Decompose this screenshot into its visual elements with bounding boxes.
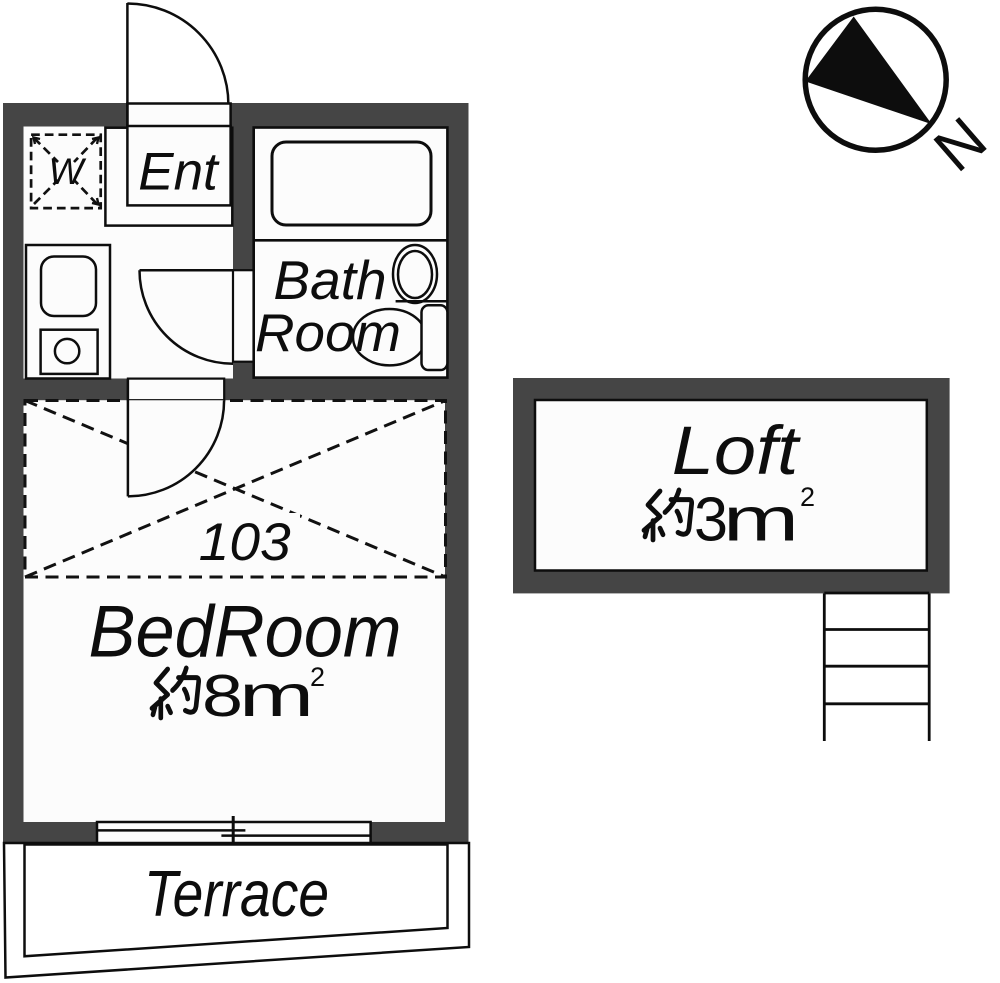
svg-text:m: m	[239, 663, 314, 729]
svg-text:2: 2	[310, 662, 325, 692]
svg-text:2: 2	[800, 482, 815, 512]
svg-text:W: W	[49, 151, 87, 192]
svg-text:103: 103	[199, 513, 292, 572]
svg-text:Ent: Ent	[138, 143, 220, 202]
svg-text:BedRoom: BedRoom	[89, 592, 402, 673]
svg-text:Loft: Loft	[672, 412, 802, 489]
svg-text:Terrace: Terrace	[144, 857, 329, 930]
svg-text:m: m	[723, 486, 799, 555]
svg-text:Bath: Bath	[273, 249, 386, 311]
svg-text:Room: Room	[255, 304, 401, 363]
svg-text:8: 8	[202, 663, 243, 729]
